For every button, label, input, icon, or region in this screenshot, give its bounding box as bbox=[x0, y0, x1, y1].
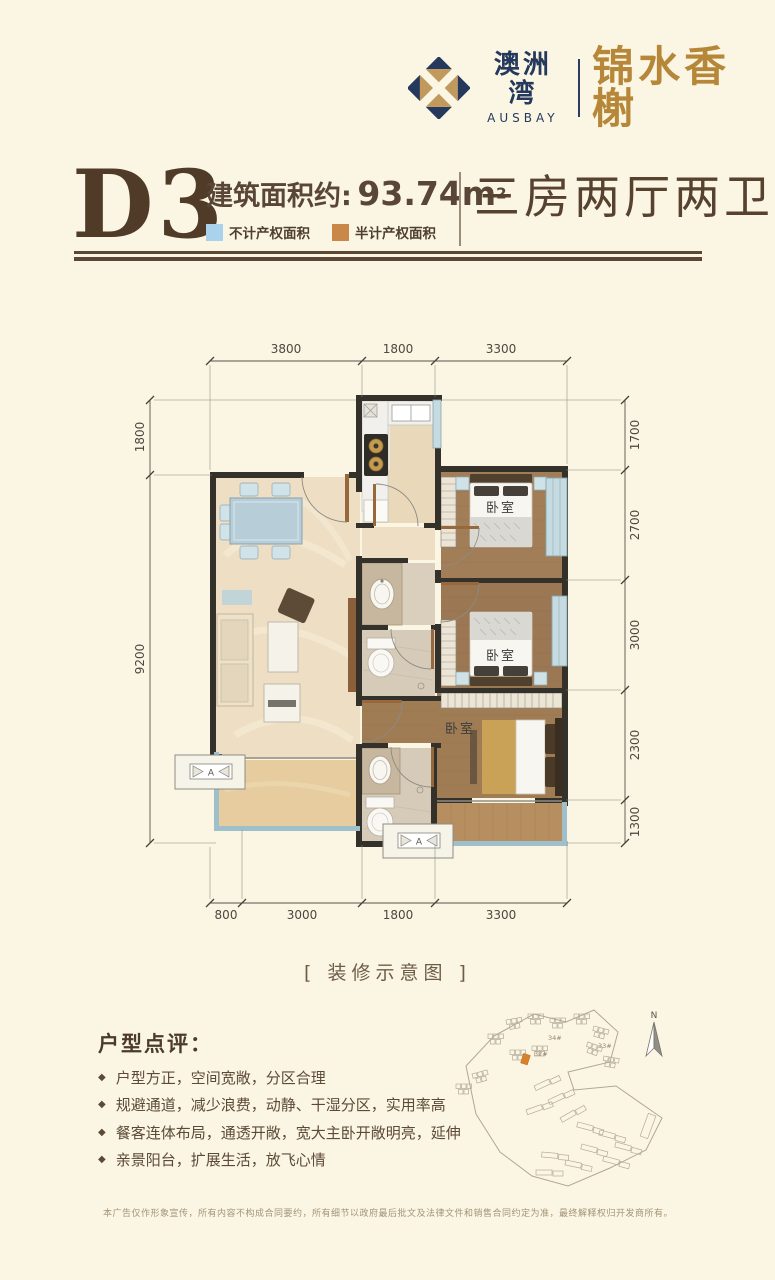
ac-platform-left: A bbox=[175, 755, 245, 789]
bedroom-label-master: 卧室 bbox=[445, 721, 475, 737]
kitchen-window bbox=[433, 400, 441, 448]
north-arrow-icon: N bbox=[646, 1011, 662, 1056]
brand-name-cn: 澳洲湾 bbox=[480, 51, 566, 108]
bullet-diamond-icon bbox=[98, 1123, 106, 1143]
coffee-table bbox=[268, 622, 298, 672]
bedroom-1 bbox=[441, 472, 562, 578]
bullet-diamond-icon bbox=[98, 1068, 106, 1088]
master-corridor bbox=[362, 701, 437, 743]
dim-right-3: 3000 bbox=[628, 620, 642, 651]
rug bbox=[222, 590, 252, 605]
dim-top-2: 1800 bbox=[383, 342, 414, 356]
bed-bench bbox=[470, 730, 477, 784]
dim-bottom-4: 3300 bbox=[486, 908, 517, 922]
brand-name-block: 澳洲湾 AUSBAY bbox=[480, 51, 566, 124]
area-block: 建筑面积约: 93.74m2 不计产权面积 半计产权面积 bbox=[206, 174, 507, 242]
ac-label: A bbox=[208, 769, 215, 779]
nightstand bbox=[534, 477, 547, 490]
area-label: 建筑面积约: bbox=[206, 181, 352, 212]
title-divider bbox=[459, 172, 461, 246]
bedroom-2 bbox=[441, 583, 562, 688]
ac-label: A bbox=[416, 838, 423, 848]
nightstand bbox=[456, 477, 469, 490]
section-rule bbox=[74, 251, 702, 261]
north-label: N bbox=[651, 1011, 658, 1021]
wardrobe bbox=[441, 693, 562, 708]
legend-swatch-blue bbox=[206, 224, 223, 241]
plan-caption: [ 装修示意图 ] bbox=[0, 958, 775, 985]
dim-left-1: 1800 bbox=[133, 422, 147, 453]
powder-vanity bbox=[362, 563, 435, 625]
building-area: 建筑面积约: 93.74m2 bbox=[206, 174, 507, 213]
brand-logo-icon bbox=[408, 57, 470, 119]
bathroom-1 bbox=[362, 630, 435, 696]
ac-platform-bottom: A bbox=[383, 824, 453, 858]
dining-table bbox=[230, 498, 302, 544]
nightstand bbox=[534, 672, 547, 685]
building-label-34: 34# bbox=[548, 1034, 562, 1042]
layout-type: 三房两厅两卫 bbox=[474, 170, 774, 225]
brand-divider bbox=[578, 59, 580, 117]
bedroom-label-2: 卧室 bbox=[486, 648, 516, 664]
dim-right-4: 2300 bbox=[628, 730, 642, 761]
nightstand bbox=[456, 672, 469, 685]
area-legend: 不计产权面积 半计产权面积 bbox=[206, 222, 507, 242]
bullet-diamond-icon bbox=[98, 1095, 106, 1115]
legend-swatch-orange bbox=[332, 224, 349, 241]
dim-bottom-2: 3000 bbox=[287, 908, 318, 922]
dim-bottom-1: 800 bbox=[215, 908, 238, 922]
unit-code: D3 bbox=[72, 158, 227, 252]
flyer-page: 澳洲湾 AUSBAY 锦水香榭 D3 建筑面积约: 93.74m2 不计产权面积… bbox=[0, 0, 775, 1280]
disclaimer-text: 本广告仅作形象宣传，所有内容不构成合同要约，所有细节以政府最后批文及法律文件和销… bbox=[38, 1206, 738, 1219]
dim-top-3: 3300 bbox=[486, 342, 517, 356]
legend-label-orange: 半计产权面积 bbox=[355, 222, 436, 242]
project-name: 锦水香榭 bbox=[592, 46, 775, 130]
dim-right-5: 1300 bbox=[628, 807, 642, 838]
dim-bottom-3: 1800 bbox=[383, 908, 414, 922]
legend-label-blue: 不计产权面积 bbox=[229, 222, 310, 242]
dim-top-1: 3800 bbox=[271, 342, 302, 356]
bay-window bbox=[546, 478, 567, 556]
dim-right-2: 2700 bbox=[628, 510, 642, 541]
bay-window bbox=[552, 596, 567, 666]
building-label-32: 32# bbox=[534, 1050, 548, 1058]
building-label-33: 33# bbox=[598, 1042, 612, 1050]
master-bedroom bbox=[437, 693, 562, 798]
bedroom-label-1: 卧室 bbox=[486, 500, 516, 516]
site-map: 34# 32# 33# N bbox=[448, 1002, 688, 1202]
brand-header: 澳洲湾 AUSBAY 锦水香榭 bbox=[408, 46, 775, 130]
bed bbox=[482, 720, 516, 794]
brand-name-en: AUSBAY bbox=[480, 111, 566, 125]
floor-plan: A A 卧室 卧室 卧室 3800 1800 3300 1800 9200 17… bbox=[90, 330, 750, 955]
dim-right-1: 1700 bbox=[628, 420, 642, 451]
vanity-sink bbox=[370, 579, 394, 609]
balcony-rear bbox=[437, 803, 562, 841]
bullet-diamond-icon bbox=[98, 1150, 106, 1170]
toilet bbox=[368, 649, 394, 677]
highlighted-building bbox=[521, 1053, 531, 1065]
dim-left-2: 9200 bbox=[133, 644, 147, 675]
kitchen bbox=[362, 401, 435, 523]
